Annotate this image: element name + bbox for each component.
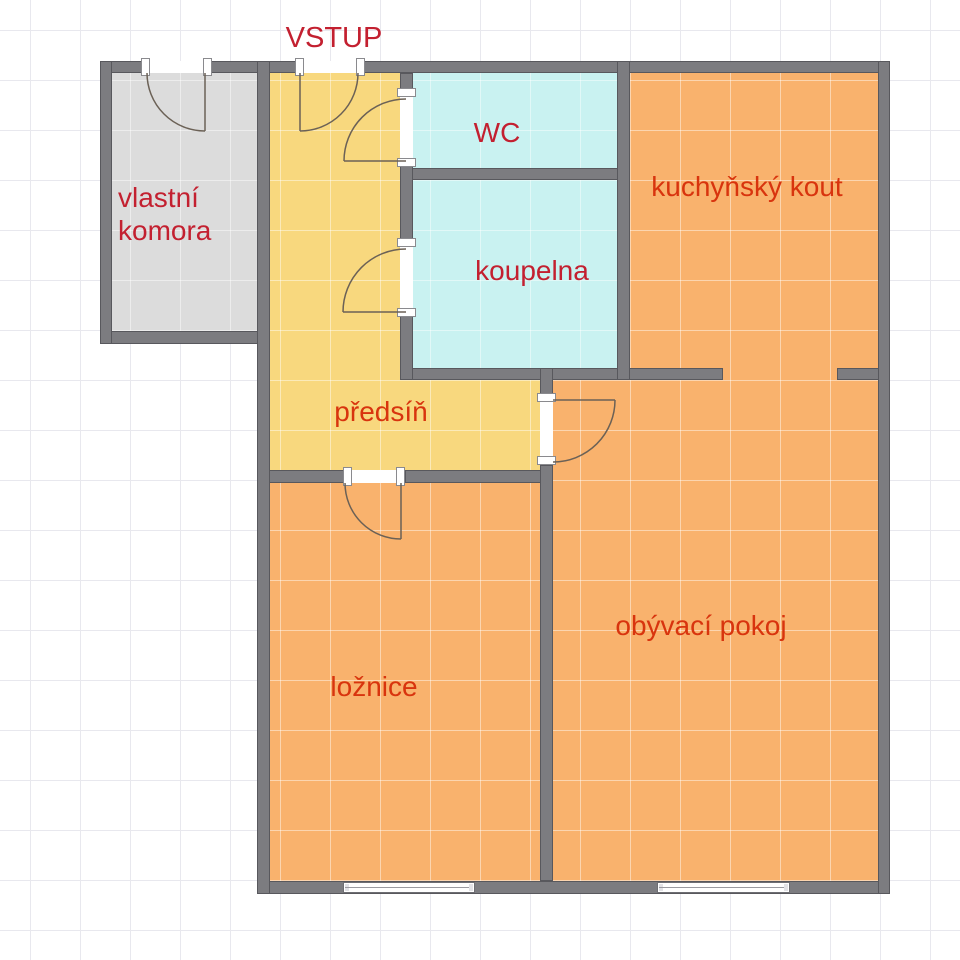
- room-label-predsin: předsíň: [334, 397, 427, 427]
- door-arc-koupelna: [343, 249, 406, 312]
- room-label-vlastni-komora: vlastní komora: [118, 181, 211, 247]
- room-label-obyvaci-pokoj: obývací pokoj: [615, 611, 786, 641]
- door-arc-wc: [344, 99, 406, 161]
- door-arc-obyvaci: [553, 400, 615, 462]
- entrance-label: VSTUP: [286, 23, 383, 53]
- room-label-kuchynsky-kout: kuchyňský kout: [651, 172, 842, 202]
- room-label-wc: WC: [474, 118, 521, 148]
- floor-plan: VSTUP vlastní komora WC koupelna kuchyňs…: [0, 0, 960, 960]
- room-label-koupelna: koupelna: [475, 256, 589, 286]
- door-arc-loznice: [345, 483, 401, 539]
- door-arc-komora: [147, 73, 205, 131]
- door-arc-vstup: [300, 73, 358, 131]
- room-label-loznice: ložnice: [330, 672, 417, 702]
